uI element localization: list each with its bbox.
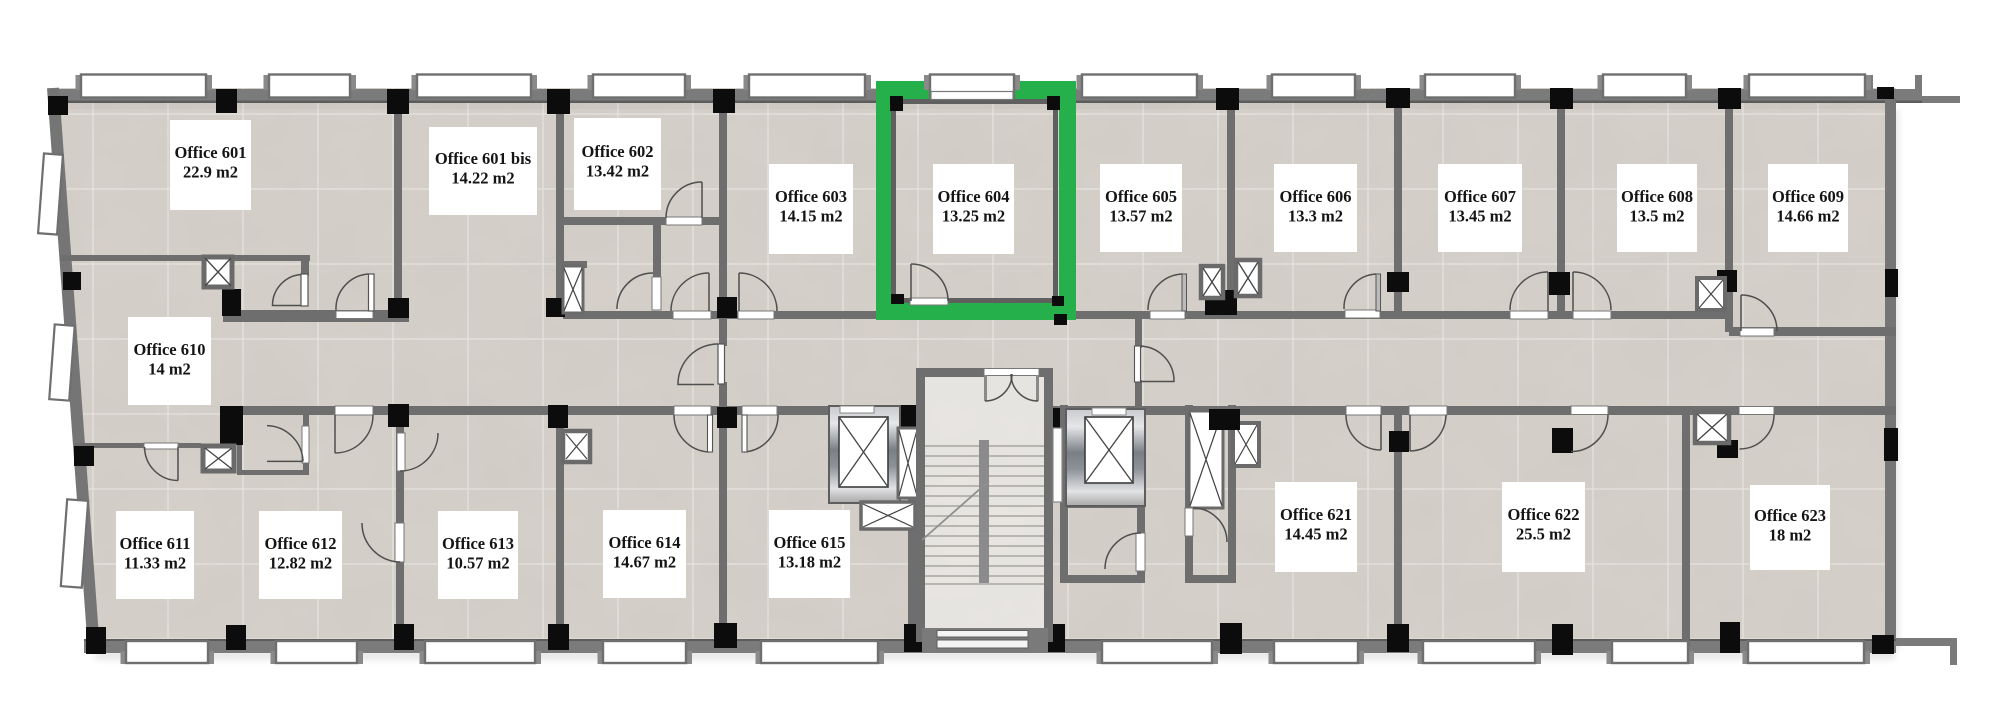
svg-text:Office 614: Office 614 — [609, 533, 681, 552]
svg-text:14 m2: 14 m2 — [148, 360, 191, 379]
svg-text:Office 603: Office 603 — [775, 187, 847, 206]
svg-text:14.45 m2: 14.45 m2 — [1284, 525, 1347, 544]
svg-text:Office 609: Office 609 — [1772, 187, 1844, 206]
svg-text:13.18 m2: 13.18 m2 — [778, 553, 841, 572]
svg-text:18 m2: 18 m2 — [1769, 526, 1812, 545]
svg-text:Office 601 bis: Office 601 bis — [435, 149, 532, 168]
svg-text:Office 621: Office 621 — [1280, 505, 1352, 524]
svg-text:14.15 m2: 14.15 m2 — [779, 207, 842, 226]
svg-text:Office 606: Office 606 — [1280, 187, 1352, 206]
svg-text:Office 602: Office 602 — [582, 142, 654, 161]
svg-text:11.33 m2: 11.33 m2 — [124, 554, 186, 573]
svg-text:13.25 m2: 13.25 m2 — [942, 207, 1005, 226]
svg-text:13.57 m2: 13.57 m2 — [1109, 207, 1172, 226]
svg-text:Office 623: Office 623 — [1754, 506, 1826, 525]
svg-text:Office 607: Office 607 — [1444, 187, 1516, 206]
svg-text:Office 610: Office 610 — [134, 340, 206, 359]
svg-text:Office 611: Office 611 — [119, 534, 190, 553]
svg-text:Office 605: Office 605 — [1105, 187, 1177, 206]
svg-text:Office 608: Office 608 — [1621, 187, 1693, 206]
svg-text:13.3 m2: 13.3 m2 — [1288, 207, 1343, 226]
svg-text:25.5 m2: 25.5 m2 — [1516, 525, 1571, 544]
svg-text:Office 604: Office 604 — [938, 187, 1010, 206]
svg-text:10.57 m2: 10.57 m2 — [446, 554, 509, 573]
svg-text:13.42 m2: 13.42 m2 — [586, 162, 649, 181]
svg-text:Office 601: Office 601 — [175, 143, 247, 162]
svg-text:14.66 m2: 14.66 m2 — [1776, 207, 1839, 226]
svg-text:Office 622: Office 622 — [1508, 505, 1580, 524]
svg-text:22.9 m2: 22.9 m2 — [183, 163, 238, 182]
svg-text:Office 615: Office 615 — [774, 533, 846, 552]
svg-text:12.82 m2: 12.82 m2 — [269, 554, 332, 573]
svg-text:14.67 m2: 14.67 m2 — [613, 553, 676, 572]
svg-text:13.45 m2: 13.45 m2 — [1448, 207, 1511, 226]
svg-text:Office 612: Office 612 — [265, 534, 337, 553]
svg-text:Office 613: Office 613 — [442, 534, 514, 553]
svg-text:14.22 m2: 14.22 m2 — [451, 169, 514, 188]
svg-text:13.5 m2: 13.5 m2 — [1630, 207, 1685, 226]
